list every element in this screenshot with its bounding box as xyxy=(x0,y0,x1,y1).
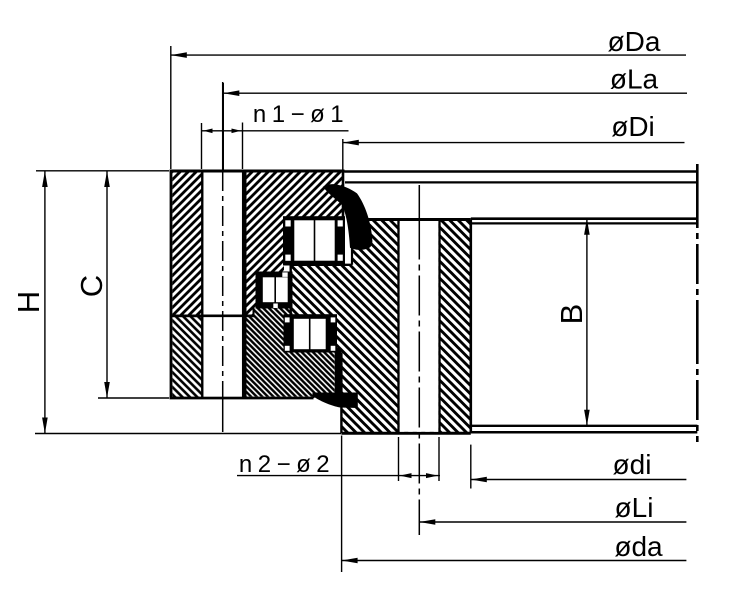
svg-text:n1−ø1: n1−ø1 xyxy=(253,101,349,128)
svg-text:øLa: øLa xyxy=(610,64,659,95)
svg-text:ødi: ødi xyxy=(613,449,652,480)
svg-text:n2−ø2: n2−ø2 xyxy=(239,451,335,478)
svg-text:B: B xyxy=(554,304,589,325)
svg-text:H: H xyxy=(11,291,46,313)
svg-text:C: C xyxy=(74,275,109,297)
svg-text:øDi: øDi xyxy=(611,111,655,142)
svg-text:øDa: øDa xyxy=(608,26,661,57)
svg-text:øLi: øLi xyxy=(615,492,654,523)
svg-text:øda: øda xyxy=(614,531,663,562)
